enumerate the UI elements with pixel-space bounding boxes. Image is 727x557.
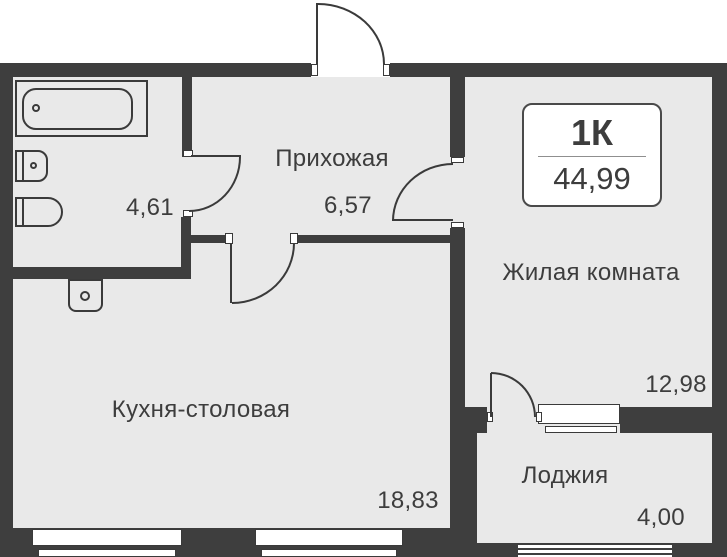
wall-bathroom-right-upper (182, 77, 192, 157)
entrance-door-jamb-left (311, 64, 318, 76)
entrance-door-arc (318, 3, 385, 64)
wall-loggia-bottom-right (672, 543, 712, 557)
room-area-living: 12,98 (645, 371, 707, 399)
wall-hallway-kitchen-right (298, 235, 453, 243)
kitchen-window-left (32, 529, 182, 546)
unit-card-divider (538, 156, 646, 157)
unit-info-card: 1К 44,99 (522, 103, 662, 207)
wall-hallway-living-upper (450, 77, 465, 157)
room-label-living: Жилая комната (502, 259, 679, 287)
wall-left (0, 63, 13, 557)
washing-machine-door-icon (80, 291, 90, 301)
balcony-window-sill (545, 426, 617, 433)
room-area-loggia: 4,00 (637, 504, 685, 532)
room-area-kitchen: 18,83 (377, 487, 439, 515)
entrance-door-jamb-right (383, 64, 390, 76)
room-label-loggia: Лоджия (522, 462, 609, 490)
kitchen-window-right-sill (261, 549, 397, 557)
toilet-tank-line (22, 198, 24, 226)
wall-top-right (390, 63, 727, 77)
sink-back-line (22, 151, 24, 181)
kitchen-window-left-sill (38, 549, 176, 557)
bathtub-drain-icon (32, 104, 40, 112)
living-door-jamb-bottom (451, 222, 464, 228)
wall-bathroom-bottom (0, 267, 191, 279)
balcony-window-block (538, 404, 620, 424)
wall-right (712, 63, 727, 557)
loggia-door-jamb-right (536, 412, 542, 422)
room-label-kitchen: Кухня-столовая (112, 396, 290, 424)
unit-total-area: 44,99 (553, 161, 631, 197)
floor-plan: 1К 44,99 Прихожая 6,57 4,61 Жилая комнат… (0, 0, 727, 557)
wall-hallway-kitchen-left (188, 235, 225, 243)
wall-kitchen-loggia (450, 420, 477, 557)
room-area-bathroom: 4,61 (126, 194, 174, 222)
room-label-hallway: Прихожая (275, 145, 389, 173)
wall-loggia-bottom-left (477, 543, 518, 557)
loggia-glazing (518, 543, 672, 557)
unit-type-label: 1К (571, 113, 613, 153)
kitchen-window-right (255, 529, 403, 546)
sink-drain-icon (30, 162, 37, 169)
wall-kitchen-living (450, 228, 465, 407)
wall-top-left (0, 63, 311, 77)
room-area-hallway: 6,57 (324, 192, 372, 220)
wall-living-bottom-right (620, 407, 712, 433)
